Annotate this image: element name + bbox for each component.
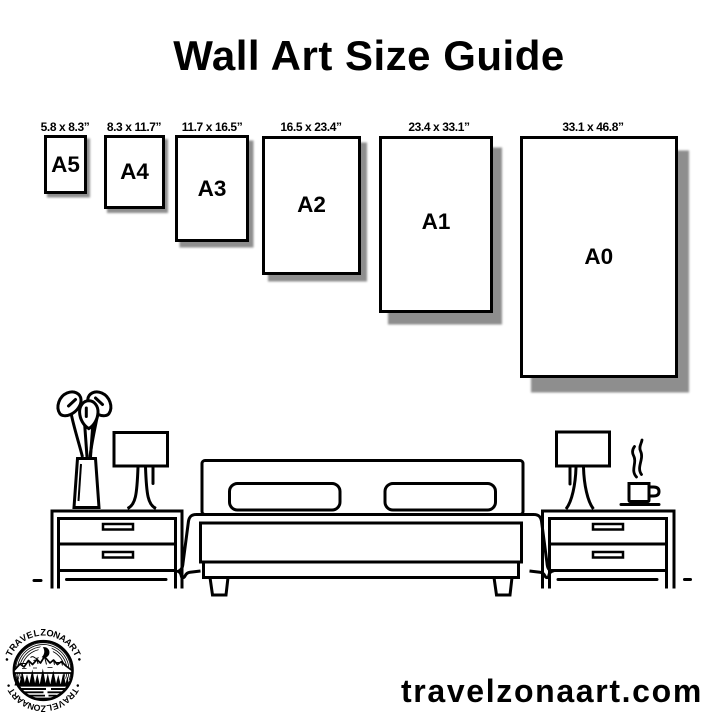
svg-text:L: L — [33, 628, 41, 639]
svg-text:•: • — [74, 656, 85, 662]
